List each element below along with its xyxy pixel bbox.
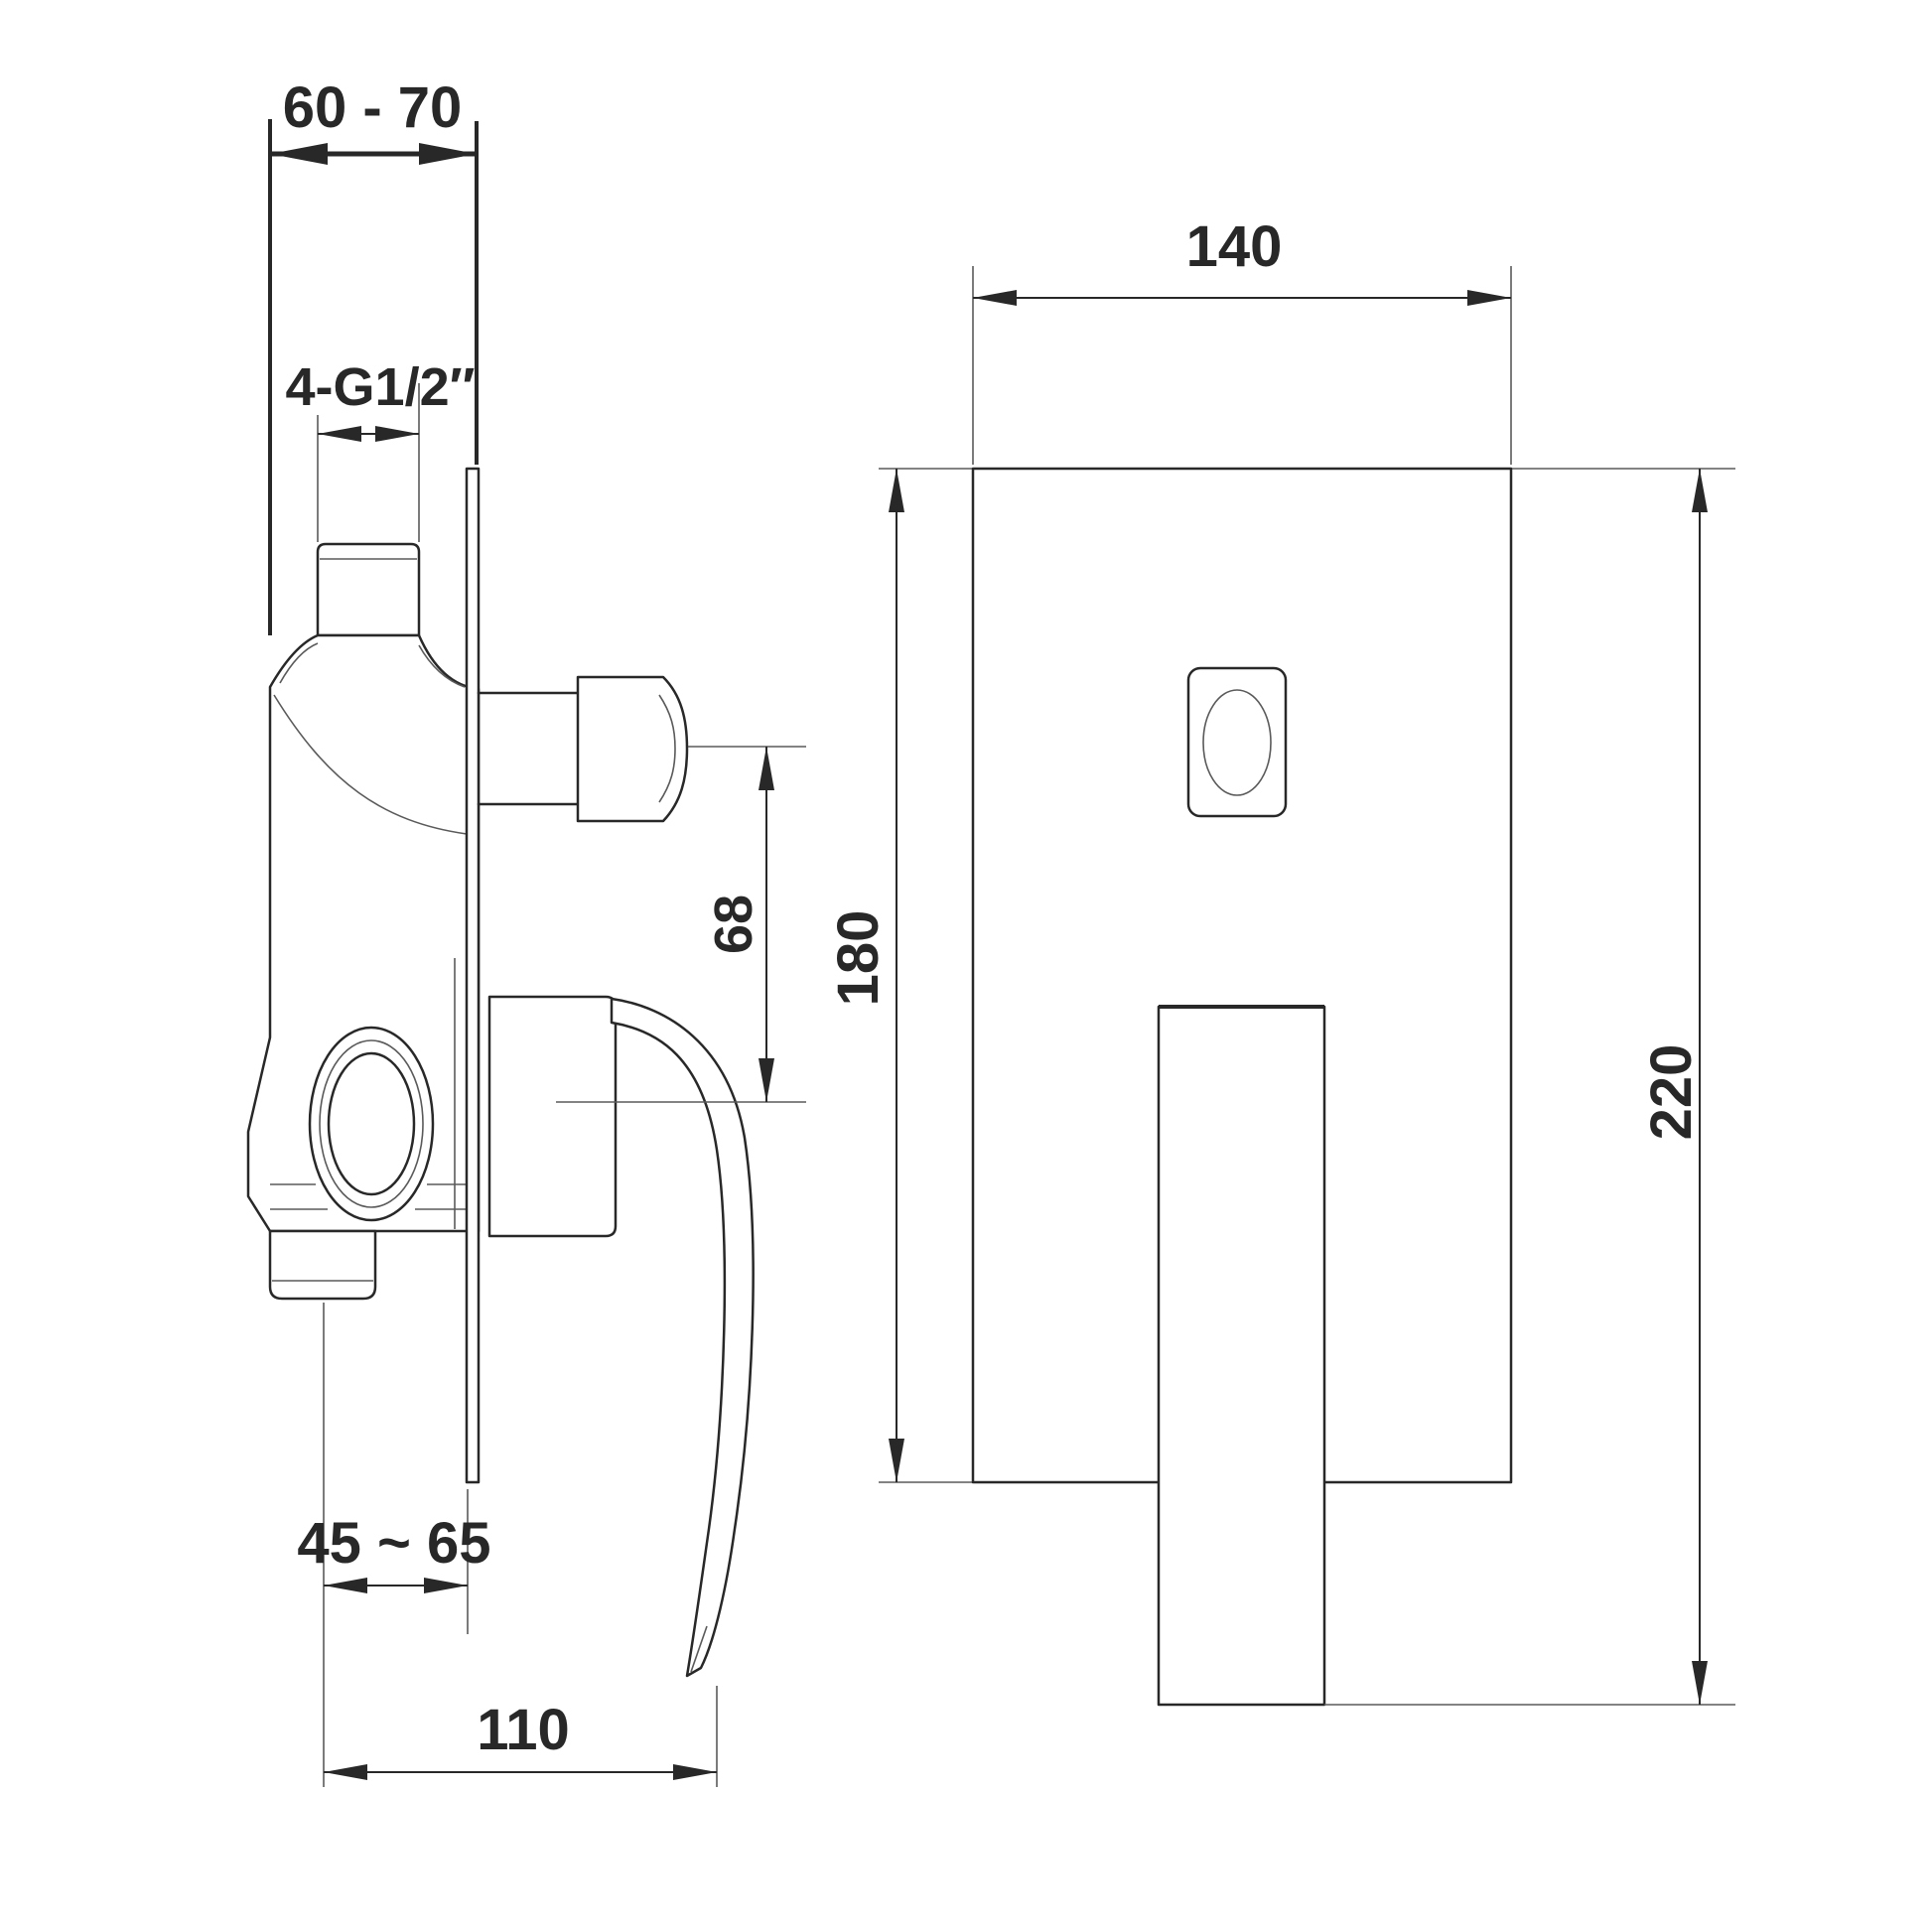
dim-plate-width: 140 bbox=[973, 214, 1511, 465]
dim-handle-offset: 68 bbox=[704, 747, 774, 1102]
technical-drawing-page: 60 - 70 4-G1/2″ bbox=[0, 0, 1932, 1932]
arrow-down-icon bbox=[889, 1439, 904, 1482]
handle-lever-blade bbox=[612, 999, 754, 1676]
knob-stem bbox=[479, 693, 578, 804]
dim-label-reach: 110 bbox=[477, 1698, 570, 1762]
arrow-right-icon bbox=[424, 1578, 468, 1593]
dim-plate-height: 180 bbox=[826, 469, 904, 1482]
valve-body bbox=[248, 544, 479, 1787]
arrow-left-icon bbox=[973, 290, 1017, 306]
body-outline bbox=[248, 635, 479, 1231]
front-view: 140 180 220 bbox=[826, 214, 1735, 1705]
dim-label-overall-height: 220 bbox=[1639, 1044, 1704, 1141]
arrow-left-icon bbox=[324, 1764, 367, 1780]
dim-handle-reach: 110 bbox=[324, 1686, 717, 1787]
dim-label-plate-width: 140 bbox=[1186, 214, 1283, 279]
arrow-up-icon bbox=[1692, 469, 1708, 512]
dim-rough-in: 45 ~ 65 bbox=[297, 1489, 490, 1634]
arrow-left-icon bbox=[270, 143, 328, 165]
knob-body bbox=[578, 677, 687, 821]
top-pipe bbox=[318, 544, 419, 635]
diverter-knob-side bbox=[479, 677, 687, 821]
arrow-right-icon bbox=[1467, 290, 1511, 306]
thread-callout: 4-G1/2″ bbox=[286, 357, 476, 542]
dim-label-mount-depth: 60 - 70 bbox=[283, 75, 463, 140]
bottom-pipe bbox=[270, 1231, 375, 1299]
dim-label-rough-in: 45 ~ 65 bbox=[297, 1511, 490, 1576]
arrow-down-icon bbox=[759, 1058, 774, 1102]
arrow-left-icon bbox=[318, 426, 361, 442]
handle-bar bbox=[1159, 1007, 1324, 1705]
arrow-down-icon bbox=[1692, 1661, 1708, 1705]
handle-escutcheon bbox=[489, 997, 616, 1236]
dim-label-thread: 4-G1/2″ bbox=[286, 357, 476, 417]
wall-plate-side bbox=[467, 469, 479, 1482]
arrow-up-icon bbox=[889, 469, 904, 512]
dim-label-offset: 68 bbox=[704, 895, 763, 954]
arrow-right-icon bbox=[375, 426, 419, 442]
dim-label-plate-height: 180 bbox=[826, 910, 891, 1007]
handle-side bbox=[489, 997, 754, 1676]
arrow-up-icon bbox=[759, 747, 774, 790]
arrow-right-icon bbox=[673, 1764, 717, 1780]
handle-front bbox=[1159, 1007, 1324, 1705]
mixer-installation-drawing: 60 - 70 4-G1/2″ bbox=[0, 0, 1932, 1932]
arrow-left-icon bbox=[324, 1578, 367, 1593]
side-view: 60 - 70 4-G1/2″ bbox=[248, 75, 806, 1787]
arrow-right-icon bbox=[419, 143, 477, 165]
